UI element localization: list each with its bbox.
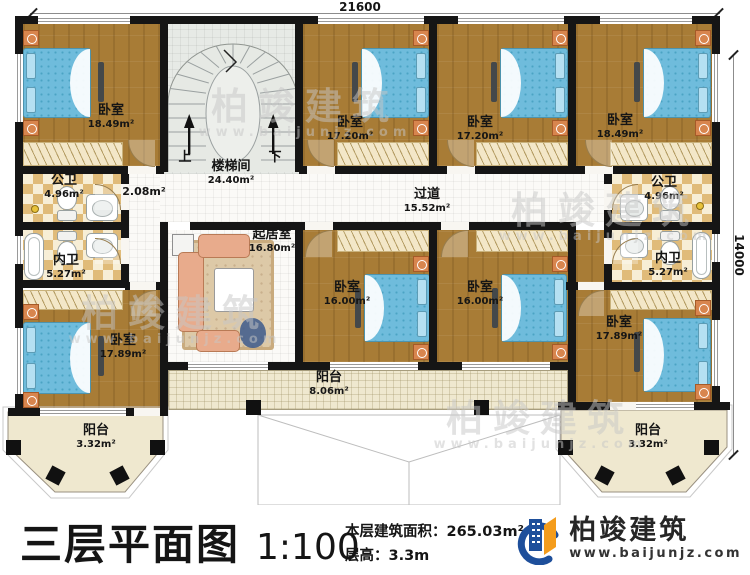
- wardrobe: [610, 142, 712, 166]
- plant: [240, 318, 266, 348]
- nightstand: [413, 344, 429, 360]
- window: [15, 236, 23, 264]
- door-opening: [447, 166, 475, 174]
- window: [458, 16, 564, 24]
- door-opening: [585, 166, 613, 174]
- lower-roof-outline: [258, 415, 560, 505]
- room-label-corridor: 过道15.52m²: [399, 188, 455, 214]
- window: [38, 16, 130, 24]
- nightstand: [695, 300, 711, 316]
- nightstand: [552, 30, 568, 46]
- bathtub: [692, 232, 711, 279]
- pillar: [150, 440, 165, 455]
- nightstand: [552, 344, 568, 360]
- nightstand: [23, 392, 39, 408]
- lamp-icon: [696, 202, 704, 210]
- room-label-hall-small: 2.08m²: [120, 186, 168, 198]
- floor-area-line: 本层建筑面积：265.03m²: [345, 521, 524, 545]
- bed: [643, 318, 711, 392]
- room-label-bedroom-br: 卧室17.89m²: [586, 316, 652, 342]
- window: [15, 328, 23, 394]
- nightstand: [413, 30, 429, 46]
- title-bar: 三层平面图 1:100 本层建筑面积：265.03m² 层高：3.3m 柏竣建筑…: [0, 505, 750, 575]
- tv-board: [491, 62, 497, 102]
- room-label-bedroom-bl: 卧室17.89m²: [90, 334, 156, 360]
- nightstand: [695, 384, 711, 400]
- door-opening: [134, 408, 160, 416]
- nightstand: [413, 256, 429, 272]
- wall: [604, 222, 720, 230]
- stair-up-label: 上: [172, 146, 198, 165]
- sofa: [196, 330, 240, 352]
- wall: [299, 166, 720, 174]
- sliding-door: [188, 362, 268, 370]
- bed: [500, 48, 568, 118]
- bed: [23, 322, 91, 394]
- plan-title-text: 三层平面图: [20, 511, 240, 572]
- door-opening: [604, 238, 612, 264]
- toilet-tank: [660, 231, 680, 241]
- pillar: [6, 440, 21, 455]
- wall: [15, 222, 129, 230]
- tv-board: [352, 62, 358, 102]
- tv-board: [98, 62, 104, 102]
- room-label-bedroom-tml: 卧室17.20m²: [318, 116, 382, 142]
- room-label-bedroom-tr: 卧室18.49m²: [588, 114, 652, 140]
- room-label-stairwell: 楼梯间24.40m²: [196, 160, 266, 186]
- wall: [429, 230, 437, 370]
- toilet-tank: [57, 210, 77, 221]
- window: [712, 234, 720, 262]
- bed: [643, 48, 711, 118]
- room-label-living: 起居室16.80m²: [239, 228, 305, 254]
- wardrobe: [23, 142, 123, 166]
- floor-height-line: 层高：3.3m: [345, 545, 524, 569]
- room-label-bedroom-bmr: 卧室16.00m²: [448, 281, 512, 307]
- dimension-top: 21600: [330, 0, 390, 14]
- coffee-table: [214, 268, 254, 312]
- window: [462, 362, 550, 370]
- room-label-bath-pri-right: 内卫5.27m²: [642, 252, 694, 278]
- nightstand: [23, 120, 39, 136]
- wardrobe: [337, 142, 429, 166]
- door-opening: [128, 166, 156, 174]
- room-label-bath-pri-left: 内卫5.27m²: [40, 254, 92, 280]
- nightstand: [552, 120, 568, 136]
- plan-info: 本层建筑面积：265.03m² 层高：3.3m: [345, 521, 524, 569]
- plan-title: 三层平面图 1:100: [20, 511, 366, 575]
- nightstand: [695, 30, 711, 46]
- room-label-balcony-center: 阳台8.06m²: [297, 371, 361, 397]
- pillar: [558, 440, 573, 455]
- door-opening: [130, 282, 156, 290]
- nightstand: [695, 120, 711, 136]
- room-label-bath-pub-right: 公卫4.96m²: [636, 176, 692, 202]
- window: [330, 362, 418, 370]
- pillar: [246, 400, 261, 415]
- room-label-balcony-left: 阳台3.32m²: [66, 424, 126, 450]
- sofa: [178, 252, 204, 332]
- room-label-bedroom-tmr: 卧室17.20m²: [448, 116, 512, 142]
- wall: [568, 20, 576, 174]
- room-label-bath-pub-left: 公卫4.96m²: [36, 174, 92, 200]
- door-opening: [610, 402, 636, 410]
- door-opening: [578, 282, 604, 290]
- wall: [429, 20, 437, 174]
- window: [318, 16, 424, 24]
- door-opening: [121, 238, 129, 264]
- room-label-balcony-right: 阳台3.32m²: [618, 424, 678, 450]
- room-label-bedroom-bml: 卧室16.00m²: [315, 281, 379, 307]
- wardrobe: [337, 230, 429, 252]
- dimension-right: 14000: [732, 234, 746, 276]
- wall: [295, 20, 303, 172]
- pillar: [474, 400, 489, 415]
- nightstand: [23, 304, 39, 320]
- company-logo: 柏竣建筑 www.baijunjz.com: [513, 513, 742, 565]
- nightstand: [23, 30, 39, 46]
- door-opening: [305, 222, 333, 230]
- floor-plan-page: 上 下: [0, 0, 750, 575]
- wall: [160, 20, 168, 172]
- lamp-icon: [31, 205, 39, 213]
- window: [600, 16, 692, 24]
- nightstand: [413, 120, 429, 136]
- bed: [361, 48, 429, 118]
- logo-company-name: 柏竣建筑: [569, 517, 742, 545]
- toilet-tank: [57, 231, 77, 241]
- window: [712, 54, 720, 122]
- wardrobe: [476, 230, 568, 252]
- window: [712, 320, 720, 386]
- toilet-tank: [660, 210, 680, 221]
- wardrobe: [476, 142, 568, 166]
- window: [15, 54, 23, 122]
- pillar: [704, 440, 719, 455]
- window: [40, 408, 126, 416]
- tv-board: [634, 62, 640, 102]
- logo-mark-icon: [513, 513, 561, 565]
- wall: [160, 282, 168, 416]
- nightstand: [552, 256, 568, 272]
- room-label-bedroom-tl: 卧室18.49m²: [76, 104, 146, 130]
- door-opening: [441, 222, 469, 230]
- wall: [15, 280, 129, 288]
- door-opening: [604, 184, 612, 210]
- logo-website: www.baijunjz.com: [569, 546, 742, 561]
- wall: [568, 222, 576, 410]
- door-opening: [307, 166, 335, 174]
